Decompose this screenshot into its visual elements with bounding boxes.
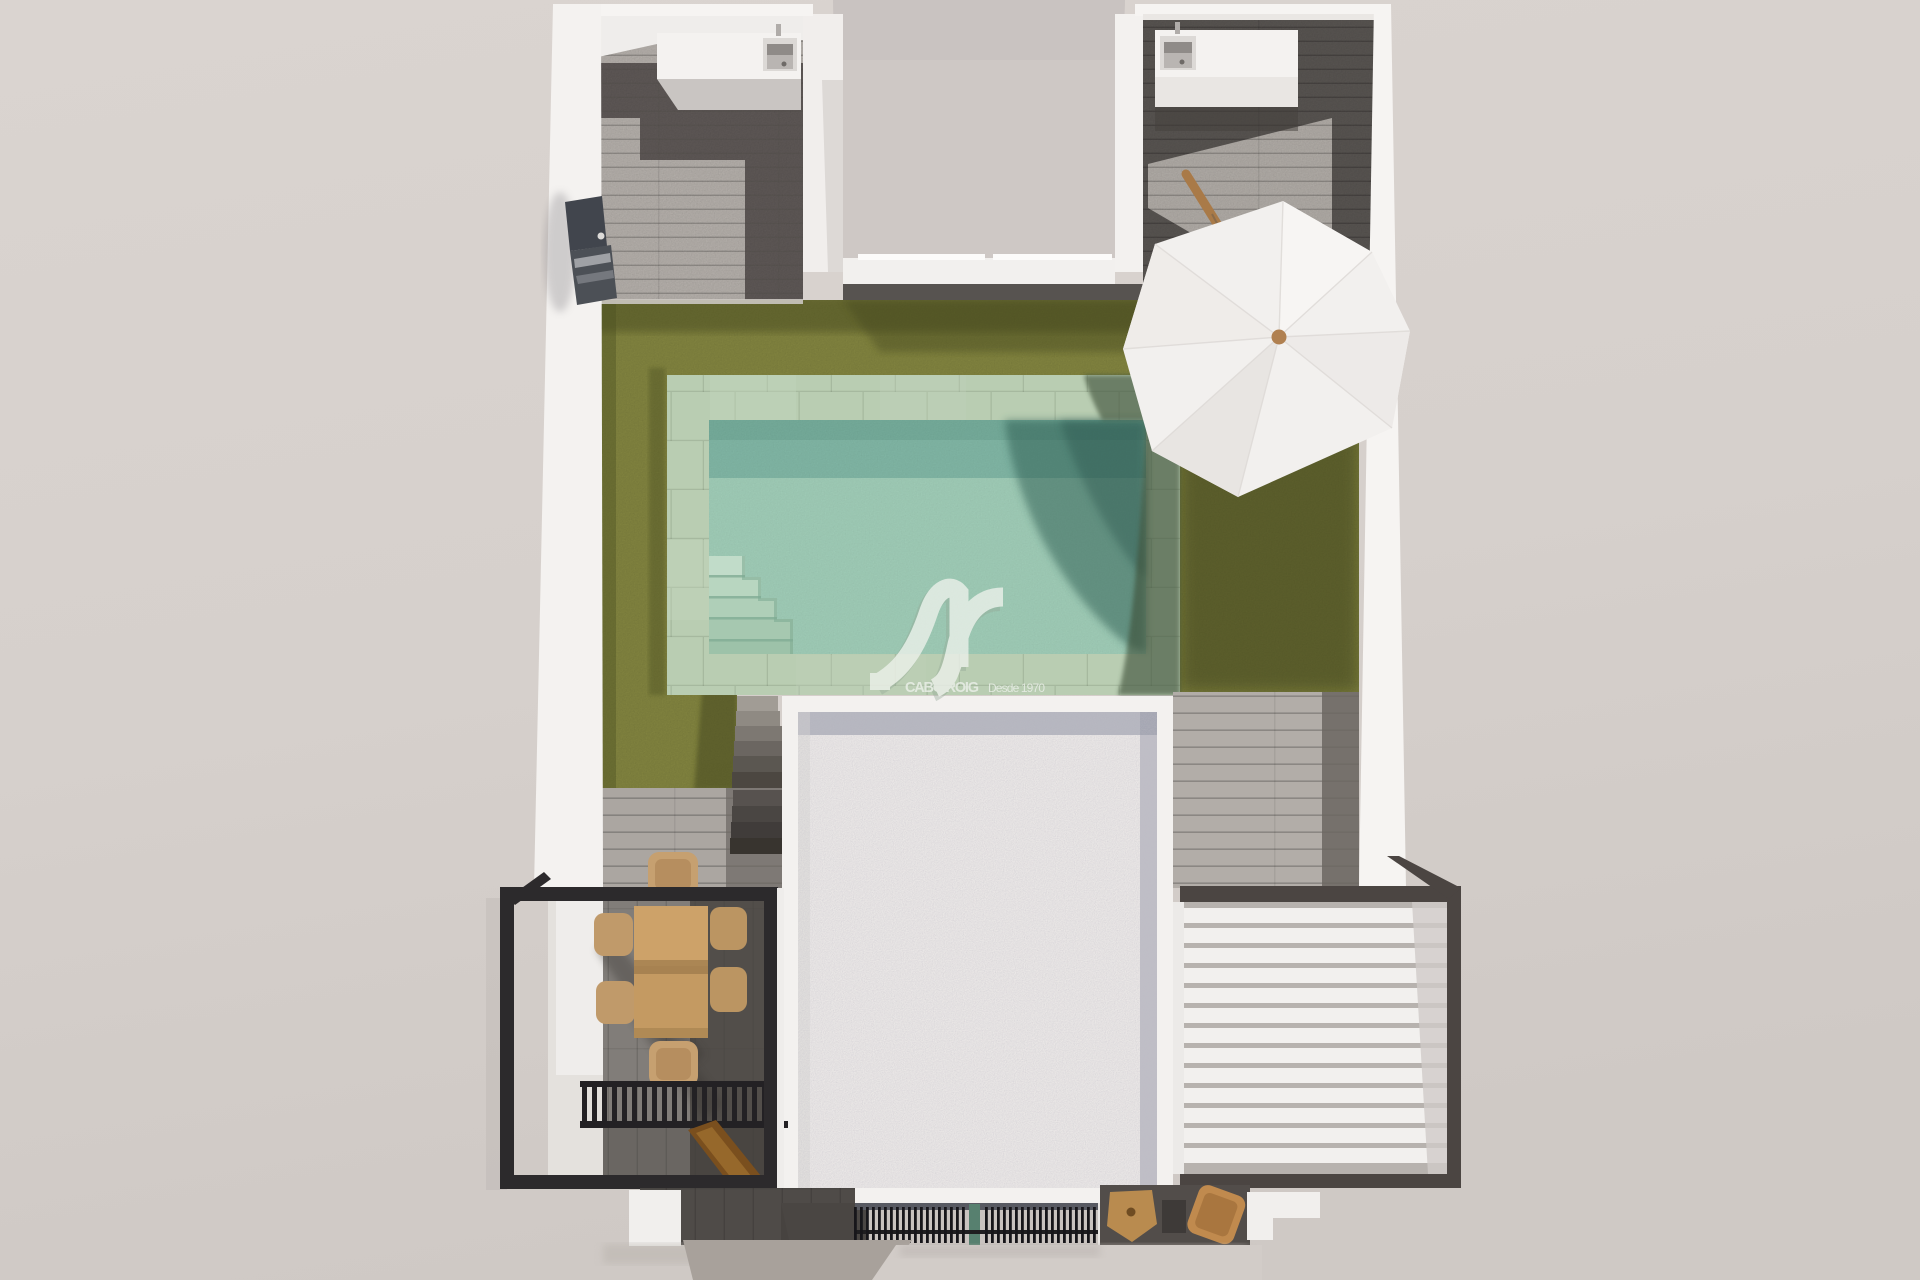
svg-text:CABO ROIG: CABO ROIG — [905, 680, 979, 696]
svg-text:Desde 1970: Desde 1970 — [988, 681, 1045, 695]
